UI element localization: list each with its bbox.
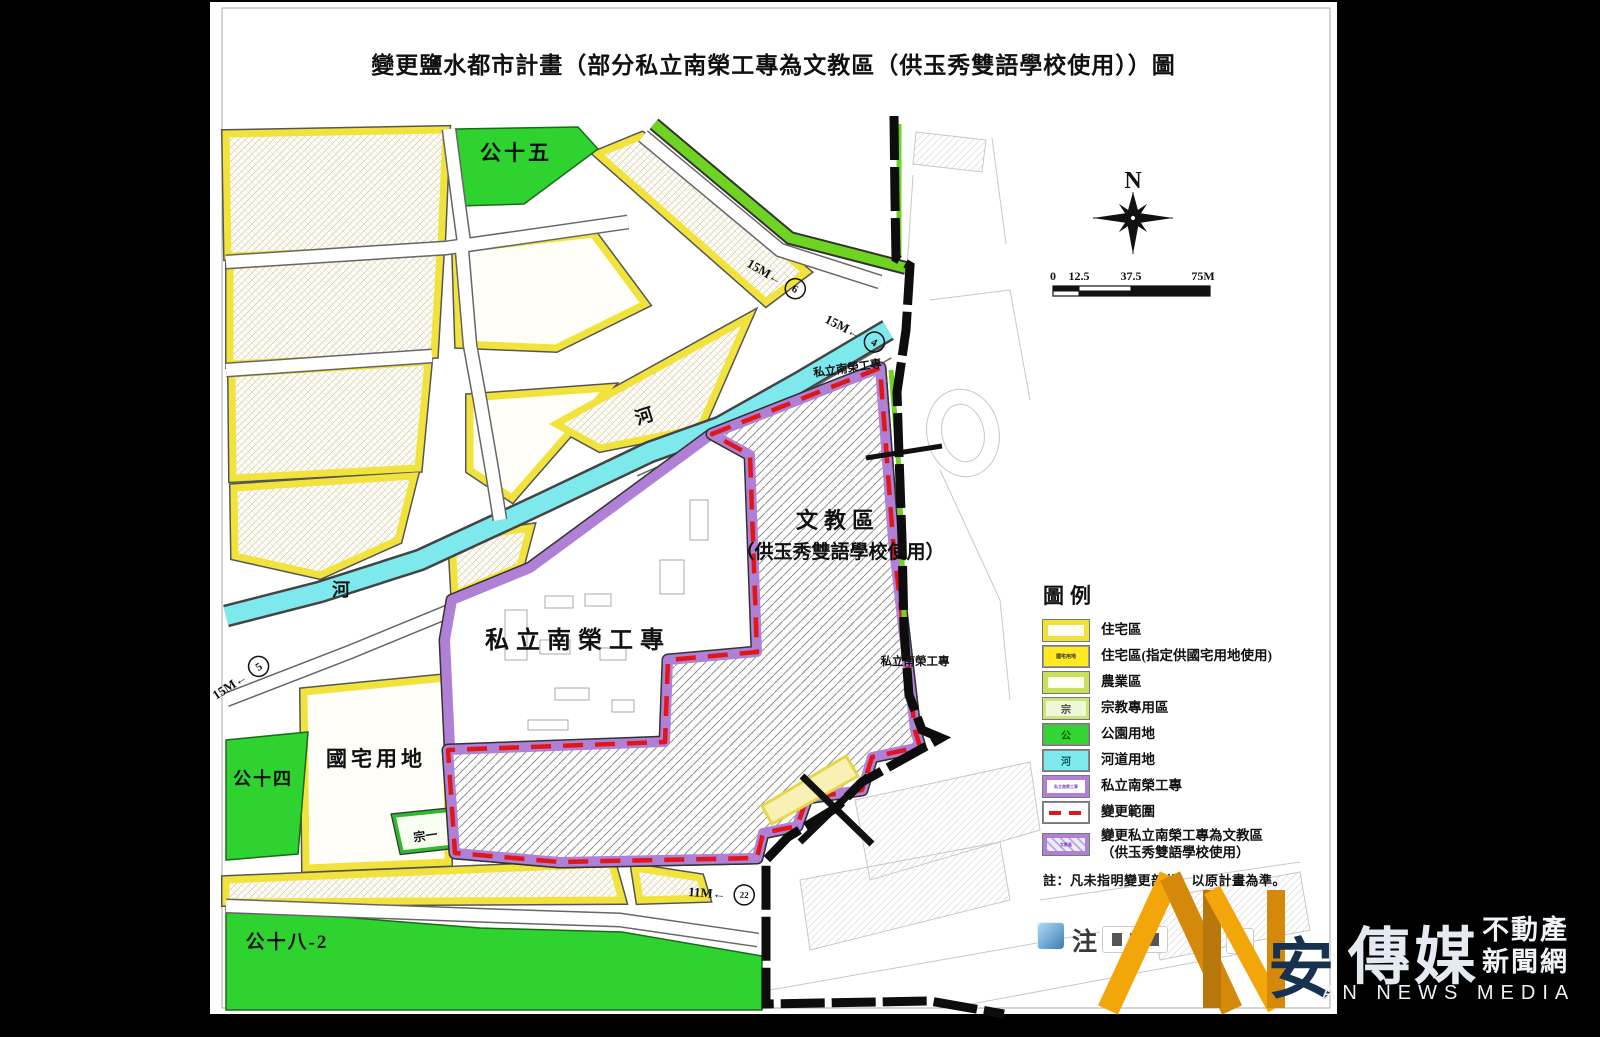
residential-assigned-swatch: 國宅用地 — [1043, 646, 1089, 667]
legend-item-school: 私立南榮工專 私立南榮工專 — [1043, 776, 1293, 797]
legend-item-change-boundary: 變更範圍 — [1043, 802, 1293, 823]
change-area-swatch: 文教區 — [1043, 834, 1089, 855]
screenshot-canvas: 公十五 公十四 公十八-2 河 河 私立南榮工專 私立南榮工專 私立南榮工專 文… — [0, 0, 1600, 1037]
change-boundary-swatch — [1043, 802, 1089, 823]
page-title: 變更鹽水都市計畫（部分私立南榮工專為文教區（供玉秀雙語學校使用））圖 — [210, 46, 1337, 80]
scale-tick-0: 0 — [1050, 269, 1056, 283]
river-label-1: 河 — [332, 580, 350, 600]
park-14-area — [226, 732, 308, 860]
brand-tagline: 不動產 新聞網 — [1482, 914, 1569, 979]
legend-panel: 圖例 住宅區 國宅用地 住宅區(指定供國宅用地使用) 農業區 宗 宗教專用區 公… — [1043, 580, 1293, 889]
legend-item-residential-assigned: 國宅用地 住宅區(指定供國宅用地使用) — [1043, 646, 1293, 667]
river-swatch: 河 — [1043, 750, 1089, 771]
scale-tick-37-5: 37.5 — [1121, 269, 1142, 283]
school-main-label: 私立南榮工專 — [485, 626, 671, 654]
religious-swatch: 宗 — [1043, 698, 1089, 719]
culture-zone-label-1: 文教區 — [796, 508, 880, 533]
legend-item-change-area: 文教區 變更私立南榮工專為文教區 （供玉秀雙語學校使用） — [1043, 828, 1293, 862]
legend-item-river: 河 河道用地 — [1043, 750, 1293, 771]
scale-tick-12-5: 12.5 — [1069, 269, 1090, 283]
school-swatch: 私立南榮工專 — [1043, 776, 1089, 797]
school-small-right-label: 私立南榮工專 — [881, 654, 950, 668]
park-18-2-label: 公十八-2 — [246, 930, 329, 953]
plan-map: 公十五 公十四 公十八-2 河 河 私立南榮工專 私立南榮工專 私立南榮工專 文… — [0, 0, 1600, 1037]
legend-item-residential: 住宅區 — [1043, 620, 1293, 641]
residential-swatch — [1043, 620, 1089, 641]
svg-text:22: 22 — [739, 890, 749, 901]
brand-subtitle: AN NEWS MEDIA — [1322, 982, 1575, 1005]
park-15-label: 公十五 — [480, 141, 552, 165]
public-housing-label: 國宅用地 — [326, 747, 426, 771]
agriculture-swatch — [1043, 672, 1089, 693]
compass-n-label: N — [1124, 168, 1142, 194]
svg-text:11M←: 11M← — [688, 884, 727, 902]
legend-item-religious: 宗 宗教專用區 — [1043, 698, 1293, 719]
legend-title: 圖例 — [1043, 580, 1293, 610]
legend-item-agriculture: 農業區 — [1043, 672, 1293, 693]
scale-tick-75: 75M — [1191, 269, 1214, 283]
park-14-label: 公十四 — [233, 768, 293, 789]
culture-zone-label-2: （供玉秀雙語學校使用） — [735, 540, 944, 563]
watermark-cube-icon — [1037, 922, 1064, 949]
park-swatch: 公 — [1043, 724, 1089, 745]
legend-item-park: 公 公園用地 — [1043, 724, 1293, 745]
